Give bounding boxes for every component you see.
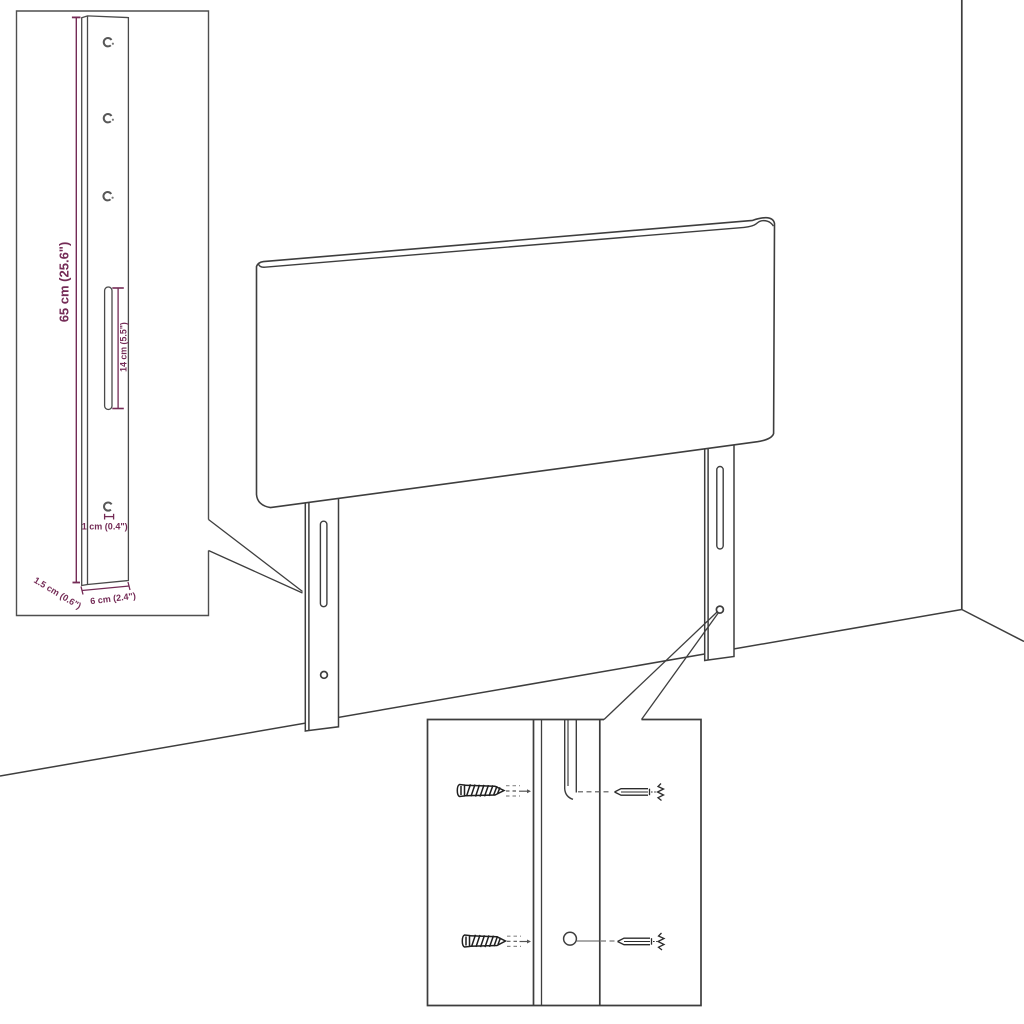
svg-text:1.5 cm (0.6"): 1.5 cm (0.6") xyxy=(32,575,83,611)
svg-text:65 cm (25.6"): 65 cm (25.6") xyxy=(57,242,72,323)
svg-text:1 cm (0.4"): 1 cm (0.4") xyxy=(82,522,128,532)
svg-text:14 cm (5.5"): 14 cm (5.5") xyxy=(119,322,129,372)
svg-text:6 cm (2.4"): 6 cm (2.4") xyxy=(90,591,137,607)
